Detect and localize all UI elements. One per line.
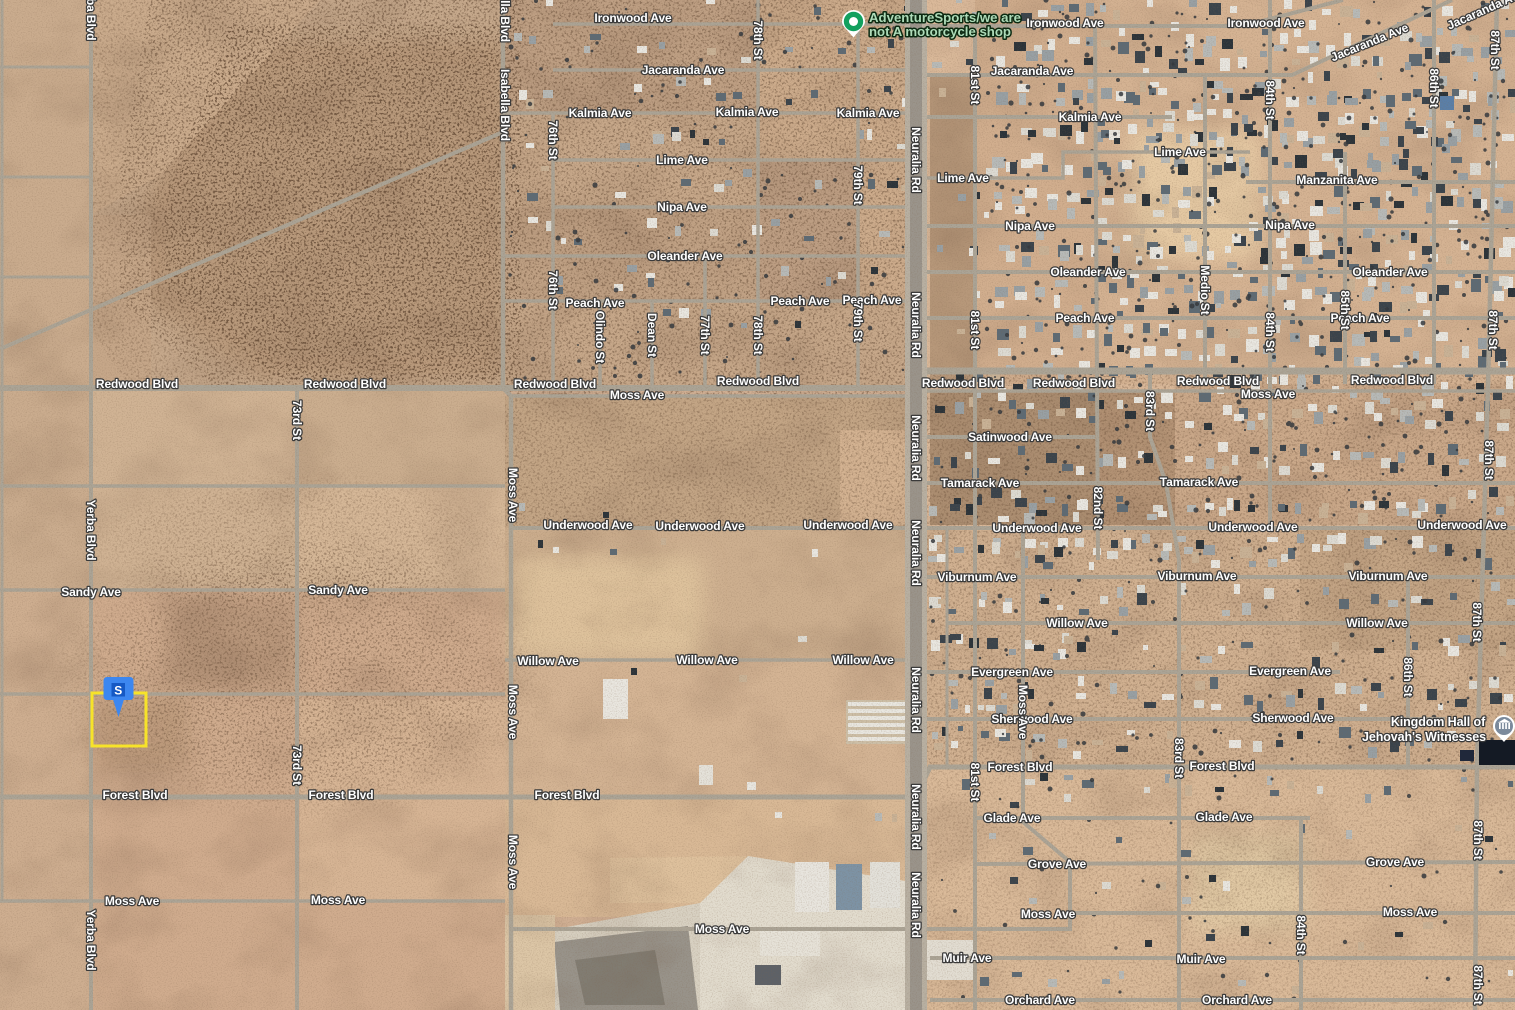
svg-text:Redwood Blvd: Redwood Blvd bbox=[96, 377, 178, 391]
svg-text:Viburnum Ave: Viburnum Ave bbox=[1157, 569, 1236, 583]
svg-text:Willow Ave: Willow Ave bbox=[517, 654, 579, 668]
svg-text:Ironwood Ave: Ironwood Ave bbox=[594, 11, 672, 25]
svg-text:Forest Blvd: Forest Blvd bbox=[309, 788, 374, 802]
svg-text:Underwood Ave: Underwood Ave bbox=[1417, 518, 1507, 532]
svg-text:Moss Ave: Moss Ave bbox=[506, 835, 520, 890]
svg-text:Peach Ave: Peach Ave bbox=[771, 294, 830, 308]
svg-text:Glade Ave: Glade Ave bbox=[1196, 810, 1253, 824]
svg-text:AdventureSports/we are: AdventureSports/we are bbox=[869, 10, 1021, 25]
svg-text:Manzanita Ave: Manzanita Ave bbox=[1296, 173, 1378, 187]
svg-text:Lime Ave: Lime Ave bbox=[1154, 145, 1206, 159]
svg-text:Neuralia Rd: Neuralia Rd bbox=[909, 872, 923, 938]
svg-text:83rd St: 83rd St bbox=[1143, 391, 1157, 431]
svg-text:87th St: 87th St bbox=[1488, 30, 1502, 69]
svg-text:Muir Ave: Muir Ave bbox=[943, 951, 992, 965]
svg-text:Oleander Ave: Oleander Ave bbox=[647, 249, 723, 263]
svg-text:Ironwood Ave: Ironwood Ave bbox=[1227, 16, 1305, 30]
svg-text:Willow Ave: Willow Ave bbox=[1046, 616, 1108, 630]
svg-text:Lime Ave: Lime Ave bbox=[656, 153, 708, 167]
svg-text:Yerba Blvd: Yerba Blvd bbox=[84, 499, 98, 560]
svg-text:Peach Ave: Peach Ave bbox=[566, 296, 625, 310]
svg-text:Willow Ave: Willow Ave bbox=[676, 653, 738, 667]
svg-text:Moss Ave: Moss Ave bbox=[610, 388, 665, 402]
svg-text:Oleander Ave: Oleander Ave bbox=[1050, 265, 1126, 279]
svg-text:77th St: 77th St bbox=[698, 315, 712, 354]
svg-text:Satinwood Ave: Satinwood Ave bbox=[968, 430, 1052, 444]
svg-text:Forest Blvd: Forest Blvd bbox=[1190, 759, 1255, 773]
svg-text:Neuralia Rd: Neuralia Rd bbox=[909, 127, 923, 193]
svg-text:Willow Ave: Willow Ave bbox=[832, 653, 894, 667]
svg-text:Underwood Ave: Underwood Ave bbox=[543, 518, 633, 532]
svg-text:Forest Blvd: Forest Blvd bbox=[535, 788, 600, 802]
svg-text:73rd St: 73rd St bbox=[290, 745, 304, 785]
svg-text:76th St: 76th St bbox=[546, 120, 560, 159]
svg-text:Neuralia Rd: Neuralia Rd bbox=[909, 784, 923, 850]
svg-text:Olindo St: Olindo St bbox=[593, 311, 607, 364]
svg-text:82nd St: 82nd St bbox=[1091, 487, 1105, 530]
svg-text:Redwood Blvd: Redwood Blvd bbox=[304, 377, 386, 391]
svg-text:Moss Ave: Moss Ave bbox=[105, 894, 160, 908]
svg-text:83rd St: 83rd St bbox=[1172, 738, 1186, 778]
svg-text:Lime Ave: Lime Ave bbox=[937, 171, 989, 185]
svg-text:S: S bbox=[114, 684, 122, 698]
svg-text:Underwood Ave: Underwood Ave bbox=[655, 519, 745, 533]
svg-text:87th St: 87th St bbox=[1471, 820, 1485, 859]
svg-text:Sherwood Ave: Sherwood Ave bbox=[991, 712, 1073, 726]
svg-text:Underwood Ave: Underwood Ave bbox=[1208, 520, 1298, 534]
svg-text:81st St: 81st St bbox=[968, 66, 982, 105]
svg-text:Jacaranda Ave: Jacaranda Ave bbox=[991, 64, 1074, 78]
svg-text:Redwood Blvd: Redwood Blvd bbox=[1033, 376, 1115, 390]
svg-text:Oleander Ave: Oleander Ave bbox=[1352, 265, 1428, 279]
svg-text:Forest Blvd: Forest Blvd bbox=[988, 760, 1053, 774]
svg-text:Kingdom Hall of: Kingdom Hall of bbox=[1391, 715, 1486, 729]
svg-text:Orchard Ave: Orchard Ave bbox=[1202, 993, 1272, 1007]
svg-text:Grove Ave: Grove Ave bbox=[1028, 857, 1087, 871]
svg-text:81st St: 81st St bbox=[968, 311, 982, 350]
svg-text:Jacaranda Ave: Jacaranda Ave bbox=[642, 63, 725, 77]
svg-text:78th St: 78th St bbox=[751, 20, 765, 59]
svg-text:Sandy Ave: Sandy Ave bbox=[61, 585, 121, 599]
svg-text:Ironwood Ave: Ironwood Ave bbox=[1026, 16, 1104, 30]
svg-text:Yerba Blvd: Yerba Blvd bbox=[84, 909, 98, 970]
svg-text:Neuralia Rd: Neuralia Rd bbox=[909, 667, 923, 733]
svg-text:87th St: 87th St bbox=[1471, 965, 1485, 1004]
svg-text:Moss Ave: Moss Ave bbox=[506, 468, 520, 523]
svg-text:Moss Ave: Moss Ave bbox=[311, 893, 366, 907]
svg-text:Dean St: Dean St bbox=[645, 313, 659, 357]
svg-text:Redwood Blvd: Redwood Blvd bbox=[717, 374, 799, 388]
svg-text:Peach Ave: Peach Ave bbox=[1056, 311, 1115, 325]
svg-text:76th St: 76th St bbox=[546, 270, 560, 309]
svg-text:79th St: 79th St bbox=[851, 165, 865, 204]
svg-text:85th St: 85th St bbox=[1338, 290, 1352, 329]
svg-text:not A motorcycle shop: not A motorcycle shop bbox=[869, 24, 1011, 39]
svg-text:Grove Ave: Grove Ave bbox=[1366, 855, 1425, 869]
svg-text:Orchard Ave: Orchard Ave bbox=[1005, 993, 1075, 1007]
svg-text:Nipa Ave: Nipa Ave bbox=[1265, 218, 1315, 232]
svg-text:Yerba Blvd: Yerba Blvd bbox=[84, 0, 98, 41]
svg-text:81st St: 81st St bbox=[968, 763, 982, 802]
svg-text:Glade Ave: Glade Ave bbox=[984, 811, 1041, 825]
svg-text:Sandy Ave: Sandy Ave bbox=[308, 583, 368, 597]
svg-text:79th St: 79th St bbox=[851, 302, 865, 341]
svg-text:Moss Ave: Moss Ave bbox=[1021, 907, 1076, 921]
svg-text:Redwood Blvd: Redwood Blvd bbox=[1177, 374, 1259, 388]
svg-text:Kalmia Ave: Kalmia Ave bbox=[716, 105, 779, 119]
svg-text:Viburnum Ave: Viburnum Ave bbox=[1348, 569, 1427, 583]
svg-text:84th St: 84th St bbox=[1263, 80, 1277, 119]
svg-text:Tamarack Ave: Tamarack Ave bbox=[1160, 475, 1239, 489]
svg-text:Underwood Ave: Underwood Ave bbox=[992, 521, 1082, 535]
svg-text:87th St: 87th St bbox=[1482, 440, 1496, 479]
svg-text:84th St: 84th St bbox=[1294, 915, 1308, 954]
svg-text:Neuralia Rd: Neuralia Rd bbox=[909, 415, 923, 481]
svg-text:Tamarack Ave: Tamarack Ave bbox=[941, 476, 1020, 490]
svg-text:Neuralia Rd: Neuralia Rd bbox=[909, 292, 923, 358]
svg-text:Kalmia Ave: Kalmia Ave bbox=[569, 106, 632, 120]
svg-text:86th St: 86th St bbox=[1401, 657, 1415, 696]
svg-text:78th St: 78th St bbox=[751, 315, 765, 354]
svg-text:Moss Ave: Moss Ave bbox=[1016, 685, 1030, 740]
svg-text:Neuralia Rd: Neuralia Rd bbox=[909, 520, 923, 586]
svg-text:87th St: 87th St bbox=[1486, 310, 1500, 349]
svg-text:Jehovah's Witnesses: Jehovah's Witnesses bbox=[1362, 730, 1486, 744]
svg-text:Moss Ave: Moss Ave bbox=[1241, 387, 1296, 401]
svg-text:Evergreen Ave: Evergreen Ave bbox=[1249, 664, 1331, 678]
svg-text:Nipa Ave: Nipa Ave bbox=[1005, 219, 1055, 233]
svg-text:84th St: 84th St bbox=[1263, 312, 1277, 351]
svg-text:Medio St: Medio St bbox=[1198, 265, 1212, 314]
svg-text:Moss Ave: Moss Ave bbox=[695, 922, 750, 936]
svg-text:Redwood Blvd: Redwood Blvd bbox=[922, 376, 1004, 390]
svg-text:Willow Ave: Willow Ave bbox=[1346, 616, 1408, 630]
svg-text:Forest Blvd: Forest Blvd bbox=[103, 788, 168, 802]
svg-text:Sherwood Ave: Sherwood Ave bbox=[1252, 711, 1334, 725]
svg-text:Viburnum Ave: Viburnum Ave bbox=[937, 570, 1016, 584]
svg-text:Moss Ave: Moss Ave bbox=[506, 685, 520, 740]
svg-text:Kalmia Ave: Kalmia Ave bbox=[837, 106, 900, 120]
svg-text:Nipa Ave: Nipa Ave bbox=[657, 200, 707, 214]
svg-text:73rd St: 73rd St bbox=[290, 400, 304, 440]
svg-text:Redwood Blvd: Redwood Blvd bbox=[1351, 373, 1433, 387]
svg-text:Evergreen Ave: Evergreen Ave bbox=[971, 665, 1053, 679]
svg-text:86th St: 86th St bbox=[1427, 68, 1441, 107]
svg-text:Muir Ave: Muir Ave bbox=[1177, 952, 1226, 966]
svg-text:Isabella Blvd: Isabella Blvd bbox=[498, 0, 512, 42]
svg-text:87th St: 87th St bbox=[1470, 602, 1484, 641]
svg-text:Moss Ave: Moss Ave bbox=[1383, 905, 1438, 919]
svg-text:Underwood Ave: Underwood Ave bbox=[803, 518, 893, 532]
svg-text:Kalmia Ave: Kalmia Ave bbox=[1059, 110, 1122, 124]
svg-text:Redwood Blvd: Redwood Blvd bbox=[514, 377, 596, 391]
svg-text:Isabella Blvd: Isabella Blvd bbox=[498, 69, 512, 141]
